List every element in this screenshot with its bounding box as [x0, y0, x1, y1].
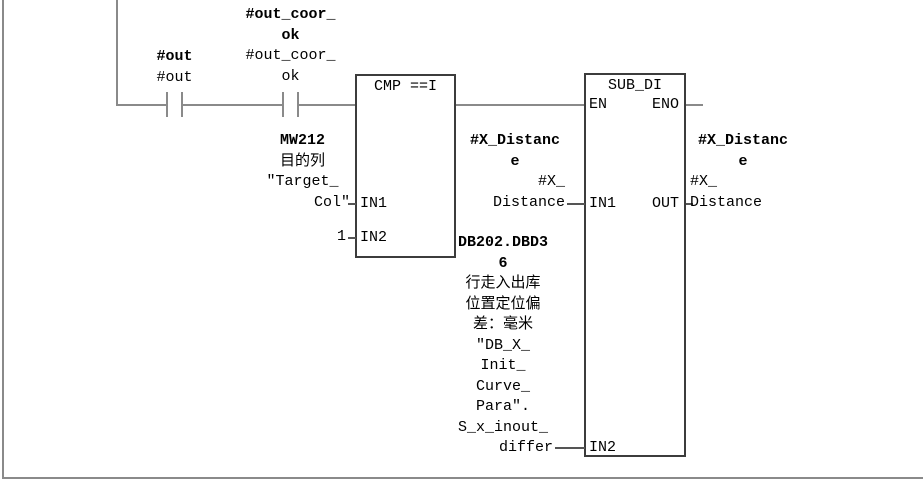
- contact-bar: [297, 92, 299, 117]
- pin-in2: IN2: [360, 230, 387, 246]
- operand-symbol: ″DB_X_: [453, 336, 553, 357]
- cmp-in1-operand[interactable]: MW212 目的列 ″Target_ Col″: [255, 131, 350, 213]
- pin-eno: ENO: [652, 97, 679, 113]
- wire-segment: [183, 104, 283, 106]
- operand-symbol: Col″: [255, 193, 350, 214]
- sub-di-block[interactable]: SUB_DI EN ENO IN1 OUT IN2: [584, 73, 686, 457]
- pin-stub: [348, 237, 356, 239]
- cmp-in2-operand[interactable]: 1: [300, 227, 346, 248]
- page-border-bottom: [2, 477, 923, 479]
- operand-comment: 差：毫米: [453, 315, 553, 336]
- operand-symbol: Para″.: [453, 397, 553, 418]
- wire-segment: [299, 104, 356, 106]
- sub-in2-operand[interactable]: DB202.DBD3 6 行走入出库 位置定位偏 差：毫米 ″DB_X_ Ini…: [453, 233, 553, 459]
- eno-stub-wire: [686, 104, 703, 106]
- pin-in1: IN1: [360, 196, 387, 212]
- lad-network-editor: #out #out #out_coor_ ok #out_coor_ ok CM…: [0, 0, 923, 486]
- operand-name: Distance: [465, 193, 565, 214]
- wire-segment: [456, 104, 585, 106]
- block-title: SUB_DI: [586, 77, 684, 94]
- sub-out-operand[interactable]: #X_Distanc e #X_ Distance: [690, 131, 796, 213]
- operand-name: #X_: [465, 172, 565, 193]
- block-title: CMP ==I: [357, 78, 454, 95]
- contact-bar: [166, 92, 168, 117]
- operand-address: 6: [453, 254, 553, 275]
- contact-out-coor-ok-label[interactable]: #out_coor_ ok #out_coor_ ok: [230, 5, 351, 87]
- operand-symbol: Init_: [453, 356, 553, 377]
- pin-en: EN: [589, 97, 607, 113]
- contact-bar: [282, 92, 284, 117]
- pin-in1: IN1: [589, 196, 616, 212]
- cmp-equal-int-block[interactable]: CMP ==I IN1 IN2: [355, 74, 456, 258]
- operand-value: 1: [300, 227, 346, 248]
- operand-symbol: Curve_: [453, 377, 553, 398]
- operand-symbol-name: e: [465, 152, 565, 173]
- contact-operand: #out: [114, 68, 235, 89]
- pin-stub: [555, 447, 585, 449]
- operand-symbol: differ: [453, 438, 553, 459]
- operand-symbol-name: #X_Distanc: [465, 131, 565, 152]
- contact-symbol-name: ok: [230, 26, 351, 47]
- operand-symbol: ″Target_: [255, 172, 350, 193]
- wire-segment: [116, 104, 167, 106]
- contact-symbol-name: #out_coor_: [230, 5, 351, 26]
- pin-in2: IN2: [589, 440, 616, 456]
- contact-out-label[interactable]: #out #out: [114, 47, 235, 88]
- operand-symbol-name: #X_Distanc: [690, 131, 796, 152]
- pin-out: OUT: [652, 196, 679, 212]
- operand-comment: 目的列: [255, 152, 350, 173]
- operand-symbol: S_x_inout_: [453, 418, 553, 439]
- contact-operand: #out_coor_: [230, 46, 351, 67]
- pin-stub: [567, 203, 585, 205]
- operand-name: #X_: [690, 172, 796, 193]
- contact-bar: [181, 92, 183, 117]
- page-border-left: [2, 0, 4, 478]
- operand-comment: 行走入出库: [453, 274, 553, 295]
- operand-address: MW212: [255, 131, 350, 152]
- contact-symbol-name: #out: [114, 47, 235, 68]
- operand-comment: 位置定位偏: [453, 295, 553, 316]
- operand-name: Distance: [690, 193, 796, 214]
- contact-operand: ok: [230, 67, 351, 88]
- sub-in1-operand[interactable]: #X_Distanc e #X_ Distance: [465, 131, 565, 213]
- operand-symbol-name: e: [690, 152, 796, 173]
- operand-address: DB202.DBD3: [453, 233, 553, 254]
